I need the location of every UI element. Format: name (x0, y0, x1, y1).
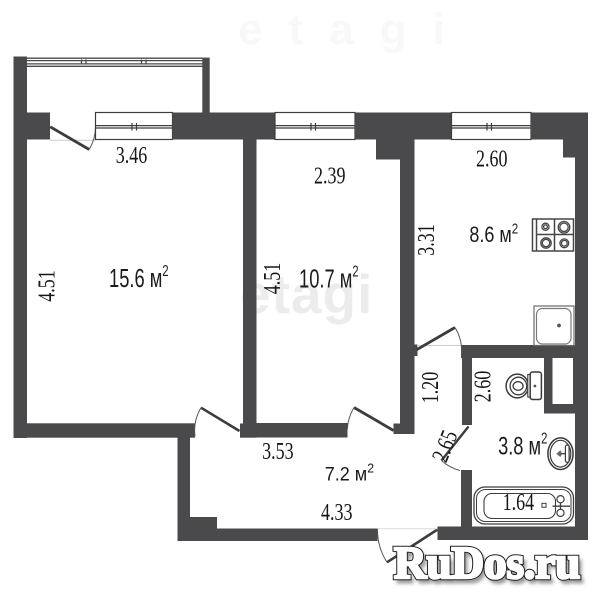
svg-text:10.7 м2: 10.7 м2 (299, 263, 359, 294)
svg-text:15.6 м2: 15.6 м2 (109, 262, 169, 293)
svg-text:3.8 м2: 3.8 м2 (498, 430, 547, 460)
svg-text:2.60: 2.60 (476, 145, 507, 172)
svg-text:4.51: 4.51 (259, 263, 286, 294)
svg-text:3.46: 3.46 (116, 142, 147, 169)
svg-text:etagi: etagi (238, 5, 471, 54)
svg-text:4.51: 4.51 (33, 270, 60, 301)
svg-text:2.60: 2.60 (469, 371, 496, 402)
svg-text:8.6 м2: 8.6 м2 (469, 220, 518, 247)
svg-text:1.64: 1.64 (503, 489, 535, 516)
svg-text:3.53: 3.53 (262, 438, 293, 465)
svg-text:RuDos.ru: RuDos.ru (394, 538, 580, 588)
svg-text:7.2 м2: 7.2 м2 (325, 461, 374, 484)
svg-text:1.20: 1.20 (417, 372, 444, 403)
svg-text:3.31: 3.31 (413, 224, 440, 255)
svg-text:4.33: 4.33 (321, 499, 352, 526)
svg-text:2.39: 2.39 (314, 162, 345, 189)
